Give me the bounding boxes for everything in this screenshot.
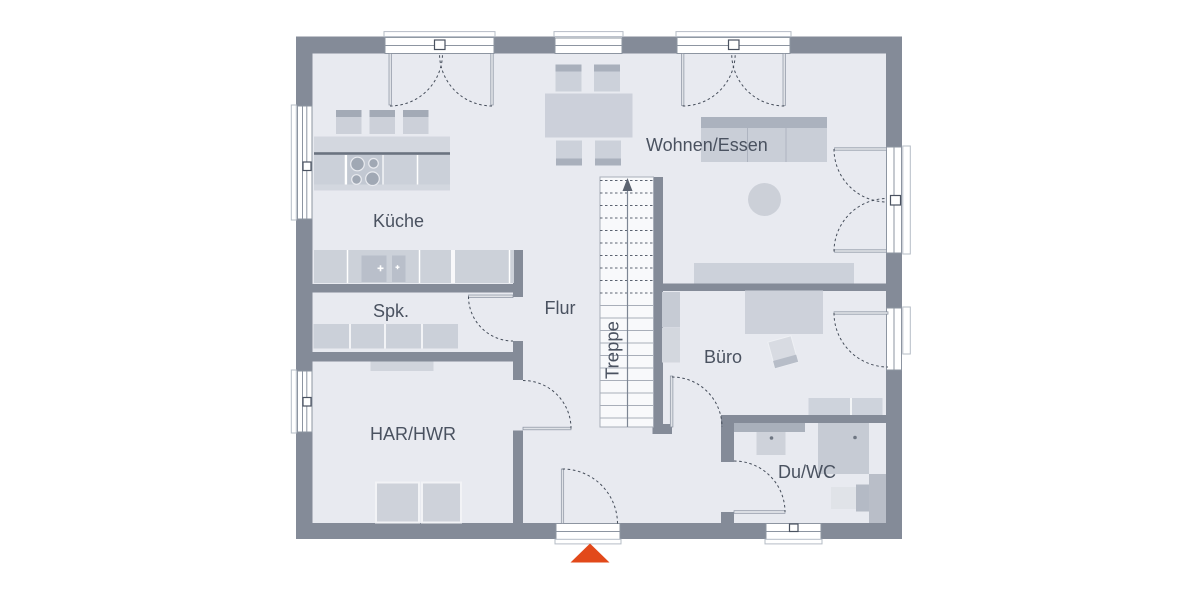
svg-text:Spk.: Spk. — [373, 301, 409, 321]
svg-text:Du/WC: Du/WC — [778, 462, 836, 482]
svg-text:Büro: Büro — [704, 347, 742, 367]
svg-text:HAR/HWR: HAR/HWR — [370, 424, 456, 444]
svg-text:Flur: Flur — [545, 298, 576, 318]
svg-text:Wohnen/Essen: Wohnen/Essen — [646, 135, 768, 155]
svg-text:Treppe: Treppe — [602, 321, 623, 379]
svg-text:Küche: Küche — [373, 211, 424, 231]
